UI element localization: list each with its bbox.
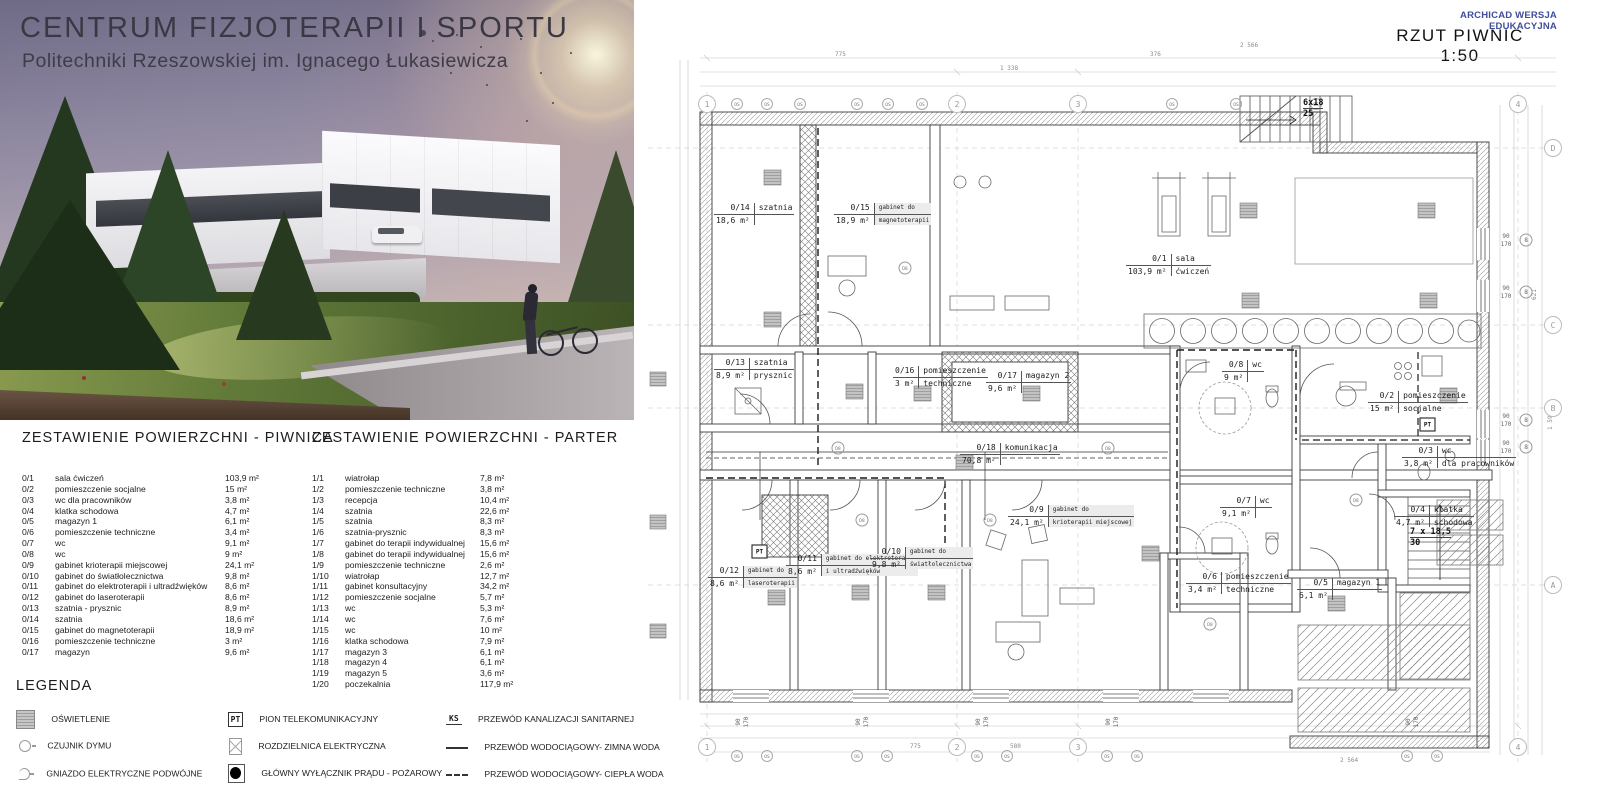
svg-text:90: 90 — [1405, 718, 1412, 726]
table-row: 1/13 wc 5,3 m² — [312, 603, 602, 614]
legend-label: PION TELEKOMUNIKACYJNY — [259, 714, 378, 724]
svg-text:90: 90 — [1502, 440, 1510, 447]
room-area: 5,3 m² — [480, 603, 504, 613]
legend-item-switchboard: ROZDZIELNICA ELEKTRYCZNA — [229, 738, 386, 755]
legend-label: CZUJNIK DYMU — [47, 740, 111, 750]
svg-text:D8: D8 — [1105, 446, 1111, 452]
room-number: 1/9 — [312, 560, 324, 570]
table-row: 1/7 gabinet do terapii indywidualnej 15,… — [312, 538, 602, 549]
svg-text:OS: OS — [884, 754, 890, 760]
svg-text:170: 170 — [1501, 241, 1512, 248]
telecom-riser-icon: PT — [228, 712, 243, 727]
table-row: 1/3 recepcja 10,4 m² — [312, 495, 602, 506]
legend-item-double-socket: GNIAZDO ELEKTRYCZNE PODWÓJNE — [19, 768, 202, 780]
svg-text:OS: OS — [764, 102, 770, 108]
room-name: gabinet do elektroterapii i ultradźwiękó… — [55, 581, 207, 591]
room-number: 1/1 — [312, 473, 324, 483]
room-number: 0/2 — [22, 484, 34, 494]
room-area: 8,6 m² — [225, 592, 249, 602]
table-row: 0/3 wc dla pracowników 3,8 m² — [22, 495, 312, 506]
room-name: wc — [345, 614, 356, 624]
room-area: 3,6 m² — [480, 668, 504, 678]
table-row: 0/15 gabinet do magnetoterapii 18,9 m² — [22, 625, 312, 636]
room-number: 0/4 — [22, 506, 34, 516]
svg-text:D: D — [1551, 144, 1556, 153]
room-area: 8,3 m² — [480, 516, 504, 526]
room-area: 3,8 m² — [225, 495, 249, 505]
electric-socket-icon — [19, 768, 30, 780]
room-number: 1/5 — [312, 516, 324, 526]
room-area: 12,7 m² — [480, 571, 509, 581]
svg-text:2: 2 — [955, 100, 960, 109]
room-number: 0/14 — [22, 614, 39, 624]
room-number: 0/12 — [22, 592, 39, 602]
svg-text:A: A — [1551, 581, 1556, 590]
svg-text:90: 90 — [855, 718, 862, 726]
table-row: 1/20 poczekalnia 117,9 m² — [312, 679, 602, 690]
main-power-switch-icon — [228, 764, 245, 783]
room-number: 0/7 — [22, 538, 34, 548]
room-area: 5,7 m² — [480, 592, 504, 602]
legend-label: GNIAZDO ELEKTRYCZNE PODWÓJNE — [46, 768, 202, 778]
room-name: szatnia — [345, 506, 372, 516]
svg-text:D8: D8 — [902, 266, 908, 272]
smoke-detector-icon — [19, 740, 31, 752]
room-area: 2,6 m² — [480, 560, 504, 570]
table-row: 1/16 klatka schodowa 7,9 m² — [312, 636, 602, 647]
svg-text:170: 170 — [983, 716, 990, 727]
svg-text:1: 1 — [705, 100, 710, 109]
table-row: 0/11 gabinet do elektroterapii i ultradź… — [22, 581, 312, 592]
svg-text:2 564: 2 564 — [1340, 757, 1358, 764]
table-row: 1/9 pomieszczenie techniczne 2,6 m² — [312, 560, 602, 571]
table-row: 1/14 wc 7,6 m² — [312, 614, 602, 625]
svg-text:3: 3 — [1076, 743, 1081, 752]
svg-text:OS: OS — [1313, 102, 1319, 108]
room-name: wc — [345, 625, 356, 635]
svg-text:OS: OS — [854, 102, 860, 108]
svg-text:8: 8 — [1524, 444, 1528, 451]
svg-text:C: C — [1551, 321, 1556, 330]
table-row: 0/16 pomieszczenie techniczne 3 m² — [22, 636, 312, 647]
room-name: magazyn 5 — [345, 668, 387, 678]
room-name: gabinet do terapii indywidualnej — [345, 538, 465, 548]
bicycle-wheel — [572, 328, 598, 354]
legend-item-sanitary-sewer: KS PRZEWÓD KANALIZACJI SANITARNEJ — [446, 714, 634, 725]
svg-text:OS: OS — [974, 754, 980, 760]
room-area: 10,4 m² — [480, 495, 509, 505]
legend-title: LEGENDA — [16, 678, 92, 694]
room-area: 6,1 m² — [480, 647, 504, 657]
room-area: 8,9 m² — [225, 603, 249, 613]
svg-text:90: 90 — [1502, 233, 1510, 240]
svg-text:170: 170 — [863, 716, 870, 727]
table-row: 1/8 gabinet do terapii indywidualnej 15,… — [312, 549, 602, 560]
room-name: gabinet do laseroterapii — [55, 592, 144, 602]
legend-label: GŁÓWNY WYŁĄCZNIK PRĄDU - POŻAROWY — [261, 768, 442, 778]
room-number: 1/4 — [312, 506, 324, 516]
room-number: 0/3 — [22, 495, 34, 505]
room-number: 0/11 — [22, 581, 38, 591]
room-area: 24,1 m² — [225, 560, 254, 570]
table-row: 0/8 wc 9 m² — [22, 549, 312, 560]
project-title: CENTRUM FIZJOTERAPII I SPORTU — [20, 12, 569, 45]
room-name: wc — [55, 538, 66, 548]
room-name: magazyn — [55, 647, 90, 657]
room-number: 0/5 — [22, 516, 34, 526]
room-name: gabinet do magnetoterapii — [55, 625, 154, 635]
table-row: 0/13 szatnia - prysznic 8,9 m² — [22, 603, 312, 614]
room-name: pomieszczenie socjalne — [55, 484, 146, 494]
svg-text:90: 90 — [735, 718, 742, 726]
room-number: 0/10 — [22, 571, 39, 581]
table-row: 0/5 magazyn 1 6,1 m² — [22, 516, 312, 527]
legend-item-lighting: OŚWIETLENIE — [16, 710, 110, 729]
room-number: 1/18 — [312, 657, 329, 667]
room-area: 9 m² — [225, 549, 242, 559]
hero-photo: CENTRUM FIZJOTERAPII I SPORTU Politechni… — [0, 0, 634, 420]
legend-label: ROZDZIELNICA ELEKTRYCZNA — [258, 741, 385, 751]
svg-text:170: 170 — [1501, 448, 1512, 455]
car-window — [378, 228, 404, 234]
svg-text:OS: OS — [1233, 102, 1239, 108]
room-number: 0/16 — [22, 636, 39, 646]
svg-text:90: 90 — [1105, 718, 1112, 726]
room-number: 1/16 — [312, 636, 329, 646]
table-row: 0/17 magazyn 9,6 m² — [22, 647, 312, 658]
room-name: pomieszczenie techniczne — [55, 527, 155, 537]
room-number: 1/3 — [312, 495, 324, 505]
room-number: 0/17 — [22, 647, 39, 657]
table-row: 0/10 gabinet do światłolecznictwa 9,8 m² — [22, 571, 312, 582]
svg-text:OS: OS — [1134, 754, 1140, 760]
room-number: 1/7 — [312, 538, 324, 548]
person-silhouette — [528, 284, 537, 293]
room-area: 9,1 m² — [225, 538, 249, 548]
room-name: wiatrołap — [345, 473, 379, 483]
room-name: pomieszczenie techniczne — [345, 560, 445, 570]
svg-text:1: 1 — [705, 743, 710, 752]
svg-text:D8: D8 — [1353, 498, 1359, 504]
table-row: 0/12 gabinet do laseroterapii 8,6 m² — [22, 592, 312, 603]
room-number: 1/2 — [312, 484, 324, 494]
room-name: pomieszczenie socjalne — [345, 592, 436, 602]
svg-text:OS: OS — [734, 754, 740, 760]
table-title: ZESTAWIENIE POWIERZCHNI - PARTER — [312, 430, 602, 446]
room-name: klatka schodowa — [55, 506, 119, 516]
room-name: szatnia — [55, 614, 82, 624]
room-number: 1/8 — [312, 549, 324, 559]
table-row: 1/19 magazyn 5 3,6 m² — [312, 668, 602, 679]
room-area: 3 m² — [225, 636, 242, 646]
table-row: 1/12 pomieszczenie socjalne 5,7 m² — [312, 592, 602, 603]
room-area: 7,6 m² — [480, 614, 504, 624]
tree — [236, 210, 332, 340]
room-number: 0/8 — [22, 549, 34, 559]
legend-label: PRZEWÓD KANALIZACJI SANITARNEJ — [478, 714, 634, 724]
svg-text:OS: OS — [734, 102, 740, 108]
svg-text:3: 3 — [1076, 100, 1081, 109]
table-row: 1/18 magazyn 4 6,1 m² — [312, 657, 602, 668]
table-row: 1/15 wc 10 m² — [312, 625, 602, 636]
svg-text:D8: D8 — [859, 518, 865, 524]
room-area: 7,9 m² — [480, 636, 504, 646]
svg-text:OS: OS — [1004, 754, 1010, 760]
svg-text:170: 170 — [743, 716, 750, 727]
svg-text:170: 170 — [1413, 716, 1420, 727]
svg-text:376: 376 — [1150, 51, 1161, 58]
svg-text:OS: OS — [797, 102, 803, 108]
room-name: magazyn 1 — [55, 516, 97, 526]
table-row: 1/6 szatnia-prysznic 8,3 m² — [312, 527, 602, 538]
room-number: 1/10 — [312, 571, 329, 581]
legend-item-main-switch: GŁÓWNY WYŁĄCZNIK PRĄDU - POŻAROWY — [228, 764, 442, 783]
svg-text:170: 170 — [1113, 716, 1120, 727]
room-number: 1/6 — [312, 527, 324, 537]
svg-text:2 566: 2 566 — [1240, 42, 1258, 49]
table-title: ZESTAWIENIE POWIERZCHNI - PIWNICA — [22, 430, 312, 446]
room-area: 103,9 m² — [225, 473, 259, 483]
table-row: 0/7 wc 9,1 m² — [22, 538, 312, 549]
room-area: 6,1 m² — [480, 657, 504, 667]
svg-text:4: 4 — [1516, 743, 1521, 752]
svg-text:B: B — [1551, 404, 1556, 413]
svg-text:OS: OS — [1104, 754, 1110, 760]
table-row: 1/5 szatnia 8,3 m² — [312, 516, 602, 527]
lighting-icon — [16, 710, 35, 729]
svg-text:OS: OS — [1169, 102, 1175, 108]
room-number: 0/9 — [22, 560, 34, 570]
room-area: 8,3 m² — [480, 527, 504, 537]
room-name: klatka schodowa — [345, 636, 409, 646]
room-name: wc — [55, 549, 66, 559]
legend-item-smoke-detector: CZUJNIK DYMU — [19, 740, 111, 752]
room-area: 8,6 m² — [225, 581, 249, 591]
room-number: 0/1 — [22, 473, 34, 483]
svg-text:OS: OS — [854, 754, 860, 760]
room-name: wiatrołap — [345, 571, 379, 581]
svg-text:OS: OS — [919, 102, 925, 108]
room-area: 18,6 m² — [225, 614, 254, 624]
floor-plan-drawing: 775 1 338 376 2 566 775 580 2 564 621 1 … — [630, 0, 1600, 798]
room-area: 15 m² — [225, 484, 247, 494]
svg-text:D8: D8 — [835, 446, 841, 452]
table-row: 0/1 sala ćwiczeń 103,9 m² — [22, 473, 312, 484]
room-name: gabinet konsultacyjny — [345, 581, 427, 591]
room-name: gabinet do terapii indywidualnej — [345, 549, 465, 559]
room-area: 15,6 m² — [480, 538, 509, 548]
room-area: 3,4 m² — [225, 527, 249, 537]
svg-text:775: 775 — [835, 51, 846, 58]
room-number: 1/14 — [312, 614, 329, 624]
svg-text:8: 8 — [1524, 289, 1528, 296]
room-area: 3,8 m² — [480, 484, 504, 494]
svg-text:90: 90 — [975, 718, 982, 726]
svg-text:OS: OS — [885, 102, 891, 108]
room-area: 10 m² — [480, 625, 502, 635]
legend-item-telecom-riser: PT PION TELEKOMUNIKACYJNY — [228, 712, 378, 727]
table-row: 1/17 magazyn 3 6,1 m² — [312, 647, 602, 658]
table-row: 1/11 gabinet konsultacyjny 34,2 m² — [312, 581, 602, 592]
room-number: 1/17 — [312, 647, 329, 657]
svg-text:8: 8 — [1524, 417, 1528, 424]
svg-text:OS: OS — [1404, 754, 1410, 760]
room-name: pomieszczenie techniczne — [55, 636, 155, 646]
room-area: 34,2 m² — [480, 581, 509, 591]
room-name: sala ćwiczeń — [55, 473, 104, 483]
svg-text:775: 775 — [910, 743, 921, 750]
room-number: 1/19 — [312, 668, 329, 678]
room-area: 18,9 m² — [225, 625, 254, 635]
svg-text:4: 4 — [1516, 100, 1521, 109]
svg-text:170: 170 — [1501, 421, 1512, 428]
table-row: 0/2 pomieszczenie socjalne 15 m² — [22, 484, 312, 495]
svg-text:90: 90 — [1502, 413, 1510, 420]
room-number: 1/20 — [312, 679, 329, 689]
presentation-board: { "hero": { "title": "CENTRUM FIZJOTERAP… — [0, 0, 1600, 798]
room-name: magazyn 3 — [345, 647, 387, 657]
room-area: 22,6 m² — [480, 506, 509, 516]
room-name: wc dla pracowników — [55, 495, 131, 505]
svg-text:2: 2 — [955, 743, 960, 752]
room-area: 9,8 m² — [225, 571, 249, 581]
room-area: 6,1 m² — [225, 516, 249, 526]
area-table-parter: ZESTAWIENIE POWIERZCHNI - PARTER 1/1 wia… — [312, 430, 602, 690]
table-row: 1/4 szatnia 22,6 m² — [312, 506, 602, 517]
room-name: szatnia-prysznic — [345, 527, 407, 537]
room-number: 0/6 — [22, 527, 34, 537]
room-name: magazyn 4 — [345, 657, 387, 667]
room-name: recepcja — [345, 495, 377, 505]
table-rows: 0/1 sala ćwiczeń 103,9 m² 0/2 pomieszcze… — [22, 473, 312, 657]
svg-text:8: 8 — [1524, 237, 1528, 244]
svg-text:PT: PT — [1424, 422, 1432, 429]
room-area: 9,6 m² — [225, 647, 249, 657]
table-rows: 1/1 wiatrołap 7,8 m² 1/2 pomieszczenie t… — [312, 473, 602, 690]
room-number: 0/15 — [22, 625, 39, 635]
svg-text:OS: OS — [764, 754, 770, 760]
room-name: wc — [345, 603, 356, 613]
room-number: 0/13 — [22, 603, 39, 613]
cold-water-line-icon — [446, 747, 468, 749]
table-row: 0/14 szatnia 18,6 m² — [22, 614, 312, 625]
room-number: 1/13 — [312, 603, 329, 613]
area-table-piwnica: ZESTAWIENIE POWIERZCHNI - PIWNICA 0/1 sa… — [22, 430, 312, 657]
room-area: 7,8 m² — [480, 473, 504, 483]
project-subtitle: Politechniki Rzeszowskiej im. Ignacego Ł… — [22, 50, 508, 73]
room-name: gabinet do światłolecznictwa — [55, 571, 163, 581]
legend-label: OŚWIETLENIE — [51, 714, 110, 724]
svg-text:PT: PT — [756, 549, 764, 556]
room-name: poczekalnia — [345, 679, 390, 689]
room-name: gabinet krioterapii miejscowej — [55, 560, 167, 570]
table-row: 0/9 gabinet krioterapii miejscowej 24,1 … — [22, 560, 312, 571]
switchboard-icon — [229, 738, 242, 755]
room-number: 1/11 — [312, 581, 328, 591]
room-name: pomieszczenie techniczne — [345, 484, 445, 494]
room-name: szatnia — [345, 516, 372, 526]
table-row: 0/4 klatka schodowa 4,7 m² — [22, 506, 312, 517]
svg-text:OS: OS — [1434, 754, 1440, 760]
room-number: 1/15 — [312, 625, 329, 635]
svg-text:D8: D8 — [987, 518, 993, 524]
svg-text:170: 170 — [1501, 293, 1512, 300]
svg-text:D8: D8 — [1207, 622, 1213, 628]
svg-text:580: 580 — [1010, 743, 1021, 750]
table-row: 1/2 pomieszczenie techniczne 3,8 m² — [312, 484, 602, 495]
room-number: 1/12 — [312, 592, 329, 602]
room-name: szatnia - prysznic — [55, 603, 121, 613]
svg-text:1 338: 1 338 — [1000, 65, 1018, 72]
hot-water-line-icon — [446, 774, 468, 776]
tree — [0, 200, 180, 370]
sewer-line-icon: KS — [446, 714, 462, 725]
room-area: 4,7 m² — [225, 506, 249, 516]
table-row: 1/1 wiatrołap 7,8 m² — [312, 473, 602, 484]
table-row: 1/10 wiatrołap 12,7 m² — [312, 571, 602, 582]
svg-text:90: 90 — [1502, 285, 1510, 292]
room-area: 117,9 m² — [480, 679, 513, 689]
room-area: 15,6 m² — [480, 549, 509, 559]
table-row: 0/6 pomieszczenie techniczne 3,4 m² — [22, 527, 312, 538]
legend-item-cold-water: PRZEWÓD WODOCIĄGOWY- ZIMNA WODA — [446, 742, 660, 752]
